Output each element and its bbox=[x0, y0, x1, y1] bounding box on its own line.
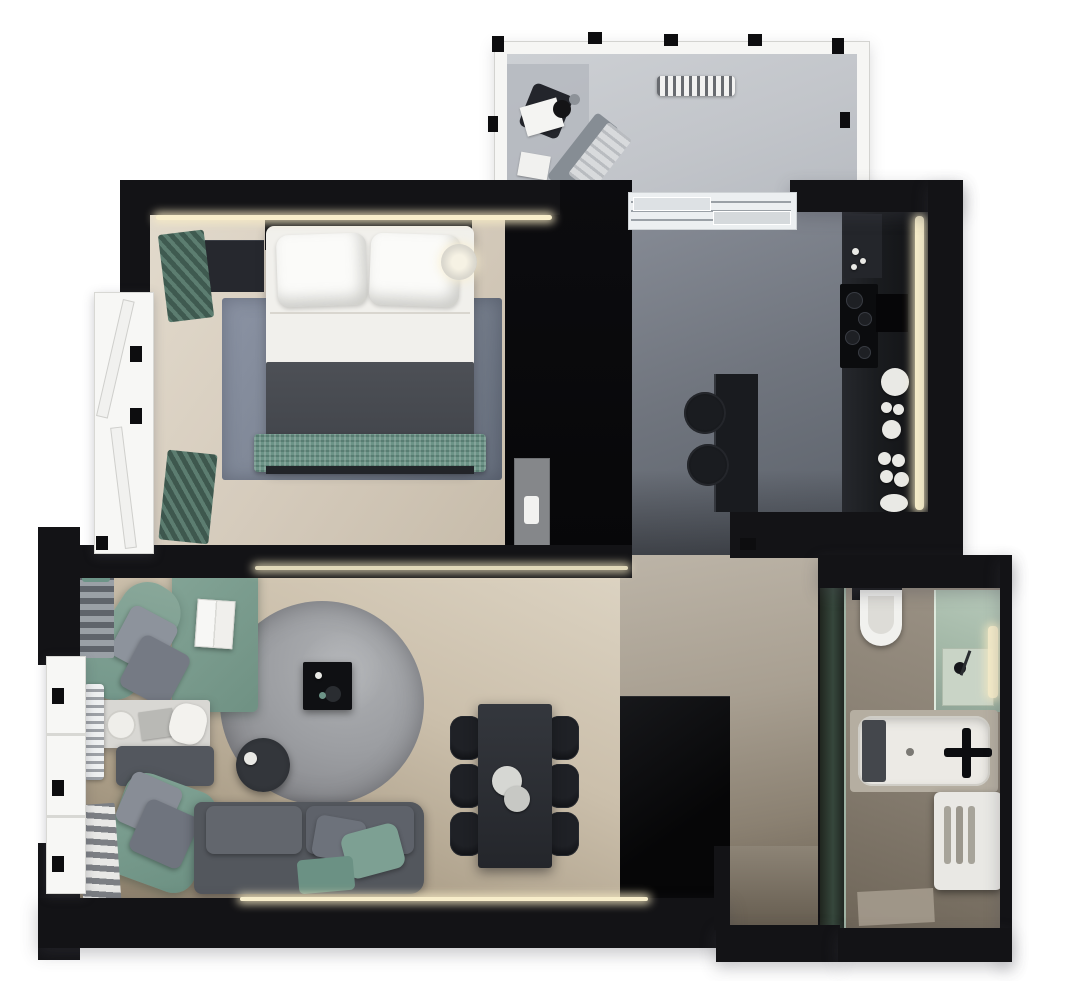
bar-stool bbox=[687, 444, 729, 486]
bathroom-bottom-wall bbox=[838, 928, 1012, 962]
table-cup bbox=[315, 672, 322, 679]
entry-jut-wall bbox=[716, 925, 840, 962]
plate-small bbox=[878, 452, 891, 465]
white-coffee-table bbox=[96, 700, 210, 748]
living-left-wall-upper bbox=[38, 527, 80, 665]
balcony-plant-pot bbox=[553, 100, 571, 118]
hinge-tick bbox=[130, 408, 142, 424]
washer-vent bbox=[944, 806, 951, 864]
sofa-throw-green bbox=[297, 856, 356, 895]
bath-faucet-vertical bbox=[962, 728, 971, 778]
bottle bbox=[852, 248, 859, 255]
plate-large bbox=[881, 368, 909, 396]
window-mullion bbox=[47, 733, 85, 736]
toilet-seat bbox=[868, 596, 894, 634]
table-plant bbox=[319, 692, 326, 699]
shower-enclosure bbox=[934, 590, 1002, 712]
bar-stool bbox=[684, 392, 726, 434]
bedroom-window bbox=[94, 292, 154, 554]
kitchen-island bbox=[714, 374, 758, 512]
clothes-rack-lower bbox=[158, 450, 217, 545]
towel-rail-backlight bbox=[988, 626, 998, 698]
hinge-tick bbox=[52, 688, 64, 704]
window-sash-open bbox=[96, 299, 135, 419]
tray-oval bbox=[880, 494, 908, 512]
toilet-bowl bbox=[860, 590, 902, 646]
bottom-wall bbox=[38, 898, 730, 948]
balcony-cup bbox=[569, 94, 580, 105]
bed-footboard bbox=[266, 466, 474, 474]
bedroom-top-wall bbox=[120, 180, 560, 215]
burner bbox=[858, 346, 871, 359]
door-panel bbox=[633, 197, 711, 211]
gray-sofa bbox=[194, 802, 424, 894]
kitchen-upper-unit bbox=[844, 214, 882, 278]
hinge-tick bbox=[52, 856, 64, 872]
living-led-top bbox=[255, 566, 628, 570]
hinge-tick bbox=[488, 116, 498, 132]
entry-niche-floor bbox=[730, 846, 818, 928]
kitchen-right-wall bbox=[928, 180, 963, 555]
bath-drain bbox=[906, 748, 914, 756]
hinge-tick bbox=[740, 538, 756, 550]
picture-book bbox=[194, 599, 235, 650]
mid-wall bbox=[70, 545, 632, 578]
bedroom-low-cabinet bbox=[514, 458, 550, 546]
bath-mat-dark bbox=[862, 720, 886, 782]
kitchen-led-strip bbox=[915, 216, 924, 510]
bed-sheet-fold bbox=[270, 312, 470, 314]
bath-door-mat bbox=[857, 888, 935, 926]
dining-table bbox=[478, 704, 552, 868]
hinge-tick bbox=[664, 34, 678, 46]
bathroom-top-wall bbox=[818, 555, 1012, 588]
living-led-bottom bbox=[240, 897, 648, 901]
floor-plan-canvas bbox=[0, 0, 1080, 981]
cabinet-item bbox=[524, 496, 539, 524]
serving-bowl bbox=[504, 786, 530, 812]
plate-small bbox=[881, 402, 892, 413]
black-coffee-table bbox=[303, 662, 352, 710]
hinge-tick bbox=[748, 34, 762, 46]
hinge-tick bbox=[832, 38, 844, 54]
balcony-door-threshold bbox=[628, 192, 797, 230]
table-bowl bbox=[325, 686, 341, 702]
balcony-paper-small bbox=[517, 152, 551, 181]
hinge-tick bbox=[840, 112, 850, 128]
window-sash-open bbox=[110, 426, 137, 549]
bathroom-right-wall bbox=[1000, 555, 1012, 962]
white-cloth bbox=[166, 700, 211, 748]
bedroom-led-cove bbox=[156, 215, 552, 220]
burner bbox=[845, 330, 860, 345]
hinge-tick bbox=[130, 346, 142, 362]
bathroom-glass-partition bbox=[820, 586, 846, 928]
plate-small bbox=[892, 454, 905, 467]
hinge-tick bbox=[52, 780, 64, 796]
ladder-shelf bbox=[78, 568, 114, 658]
washing-machine bbox=[934, 792, 1002, 890]
hinge-tick bbox=[588, 32, 602, 44]
side-table-cup bbox=[244, 752, 257, 765]
balcony-radiator bbox=[657, 76, 735, 96]
hinge-tick bbox=[492, 36, 504, 52]
bedroom-left-wall-upper bbox=[120, 180, 150, 298]
bowl bbox=[882, 420, 901, 439]
kitchen-bottom-wall bbox=[730, 512, 963, 558]
plate-small bbox=[893, 404, 904, 415]
kitchen-cooktop bbox=[840, 284, 878, 368]
bottle bbox=[860, 258, 866, 264]
living-radiator bbox=[84, 684, 104, 780]
bedside-lamp bbox=[441, 244, 477, 280]
burner bbox=[846, 292, 863, 309]
burner bbox=[858, 312, 872, 326]
bed-pillow-left bbox=[276, 232, 368, 307]
washer-vent bbox=[968, 806, 975, 864]
bathtub-surround bbox=[850, 710, 998, 792]
hinge-tick bbox=[96, 536, 108, 550]
bowl bbox=[894, 472, 909, 487]
entry-left-wall bbox=[714, 846, 730, 930]
gray-sofa-back-cushion bbox=[206, 806, 302, 854]
round-side-table bbox=[236, 738, 290, 792]
plate-small bbox=[880, 470, 893, 483]
round-tray bbox=[106, 710, 136, 740]
kitchen-sink-black bbox=[876, 294, 908, 332]
washer-vent bbox=[956, 806, 963, 864]
door-panel bbox=[713, 211, 791, 225]
bottle bbox=[851, 264, 857, 270]
window-mullion bbox=[47, 815, 85, 818]
